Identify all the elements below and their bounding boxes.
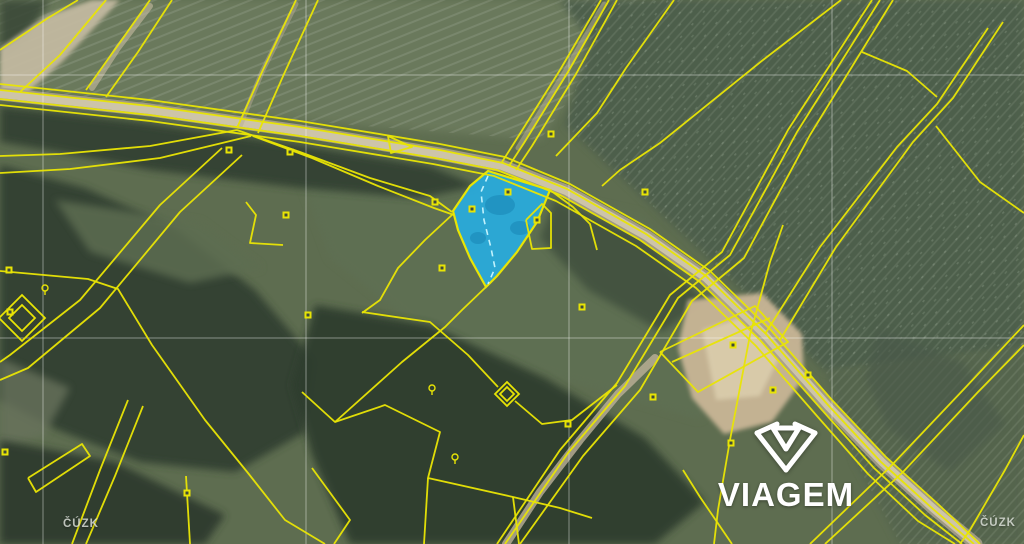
attribution-cuzk-left: ČÚZK [63, 518, 99, 530]
attribution-cuzk-right: ČÚZK [980, 517, 1016, 529]
cadastral-map-canvas [0, 0, 1024, 544]
aerial-imagery-layer [0, 0, 1024, 544]
map-viewport[interactable]: VIAGEM ČÚZK ČÚZK [0, 0, 1024, 544]
